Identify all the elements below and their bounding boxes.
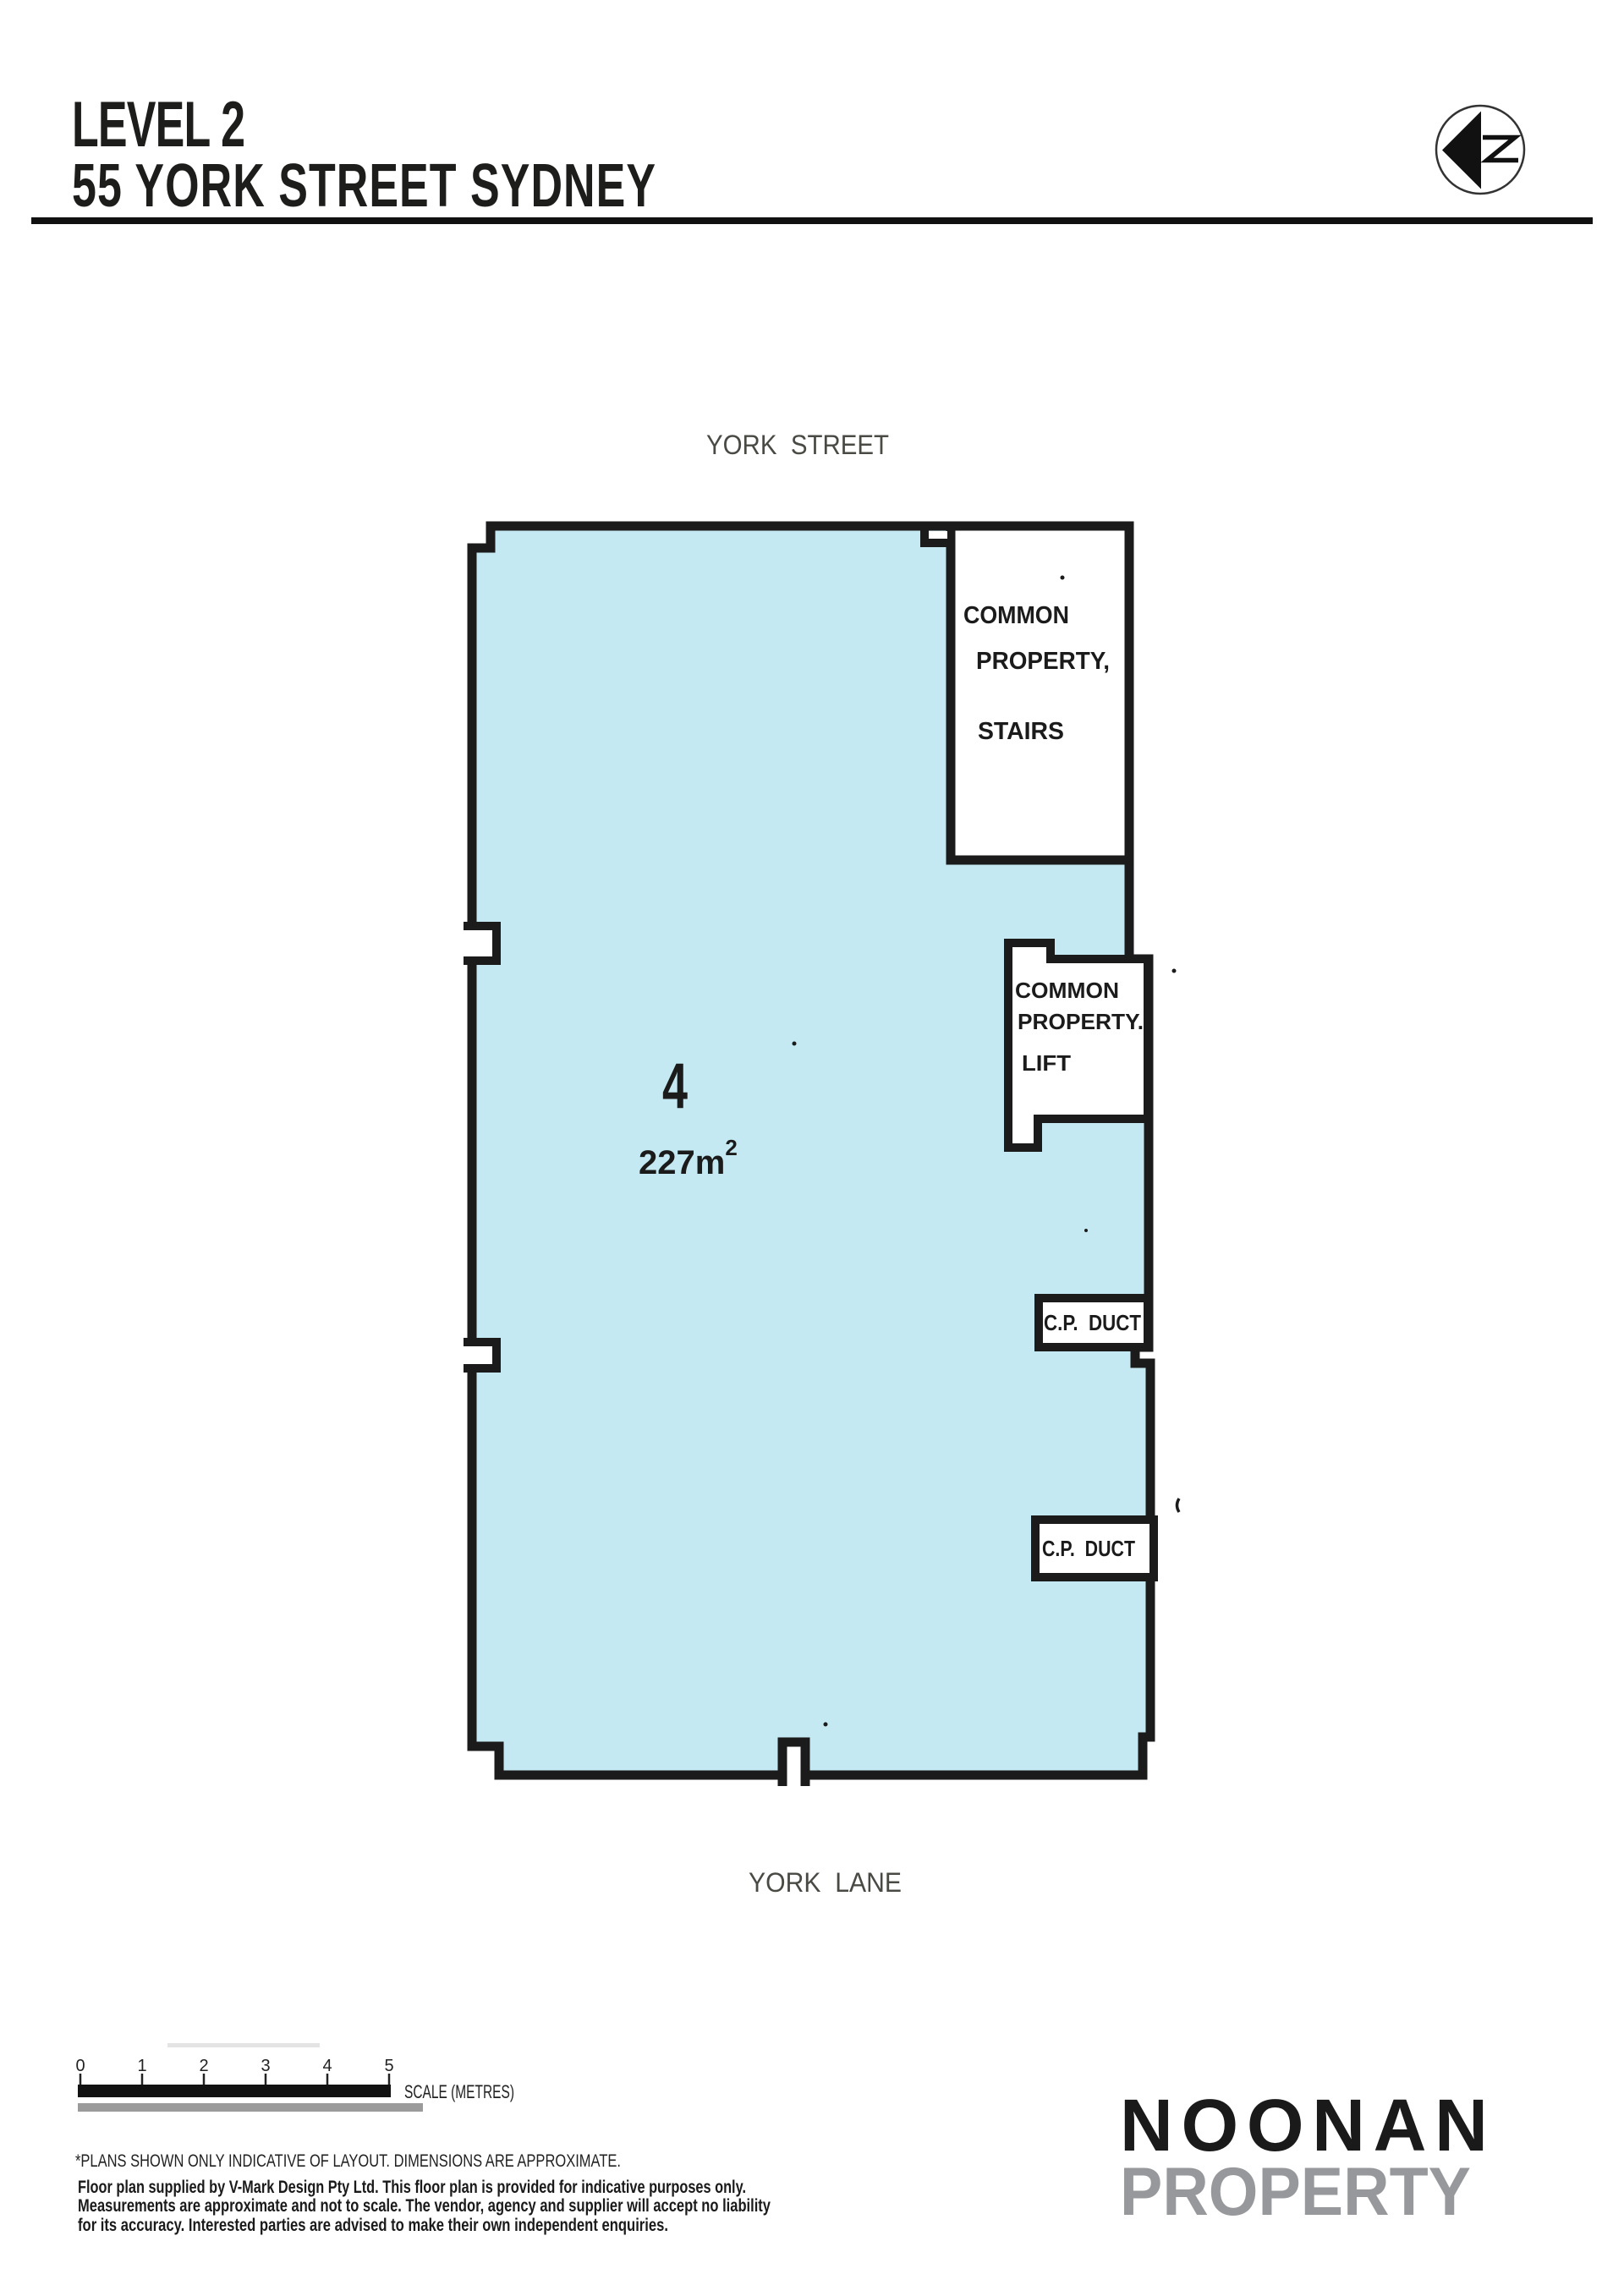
svg-text:PROPERTY.: PROPERTY.: [1018, 1009, 1144, 1034]
svg-text:2: 2: [199, 2057, 208, 2075]
svg-text:YORK LANE: YORK LANE: [749, 1867, 902, 1898]
svg-text:*PLANS SHOWN ONLY INDICATIVE O: *PLANS SHOWN ONLY INDICATIVE OF LAYOUT. …: [75, 2151, 621, 2171]
svg-text:3: 3: [261, 2057, 270, 2075]
svg-text:4: 4: [662, 1050, 688, 1122]
svg-text:C.P. DUCT: C.P. DUCT: [1042, 1536, 1135, 1561]
svg-text:PROPERTY: PROPERTY: [1120, 2154, 1471, 2230]
svg-text:LIFT: LIFT: [1022, 1050, 1071, 1076]
svg-text:LEVEL 2: LEVEL 2: [72, 88, 245, 160]
svg-text:COMMON: COMMON: [1015, 978, 1119, 1003]
svg-text:4: 4: [322, 2057, 332, 2075]
svg-text:PROPERTY,: PROPERTY,: [976, 648, 1110, 675]
svg-text:C.P. DUCT: C.P. DUCT: [1044, 1310, 1141, 1335]
svg-text:SCALE (METRES): SCALE (METRES): [404, 2081, 514, 2102]
svg-text:0: 0: [75, 2057, 85, 2075]
svg-text:YORK STREET: YORK STREET: [706, 430, 889, 460]
svg-text:for its accuracy. Interested p: for its accuracy. Interested parties are…: [78, 2216, 668, 2235]
svg-text:Measurements are approximate a: Measurements are approximate and not to …: [78, 2196, 771, 2216]
svg-text:Floor plan supplied by V-Mark: Floor plan supplied by V-Mark Design Pty…: [78, 2178, 746, 2197]
svg-text:55 YORK STREET SYDNEY: 55 YORK STREET SYDNEY: [72, 152, 656, 220]
svg-text:COMMON: COMMON: [963, 602, 1069, 629]
svg-text:1: 1: [137, 2057, 146, 2075]
svg-text:STAIRS: STAIRS: [978, 718, 1064, 745]
svg-text:5: 5: [384, 2057, 393, 2075]
